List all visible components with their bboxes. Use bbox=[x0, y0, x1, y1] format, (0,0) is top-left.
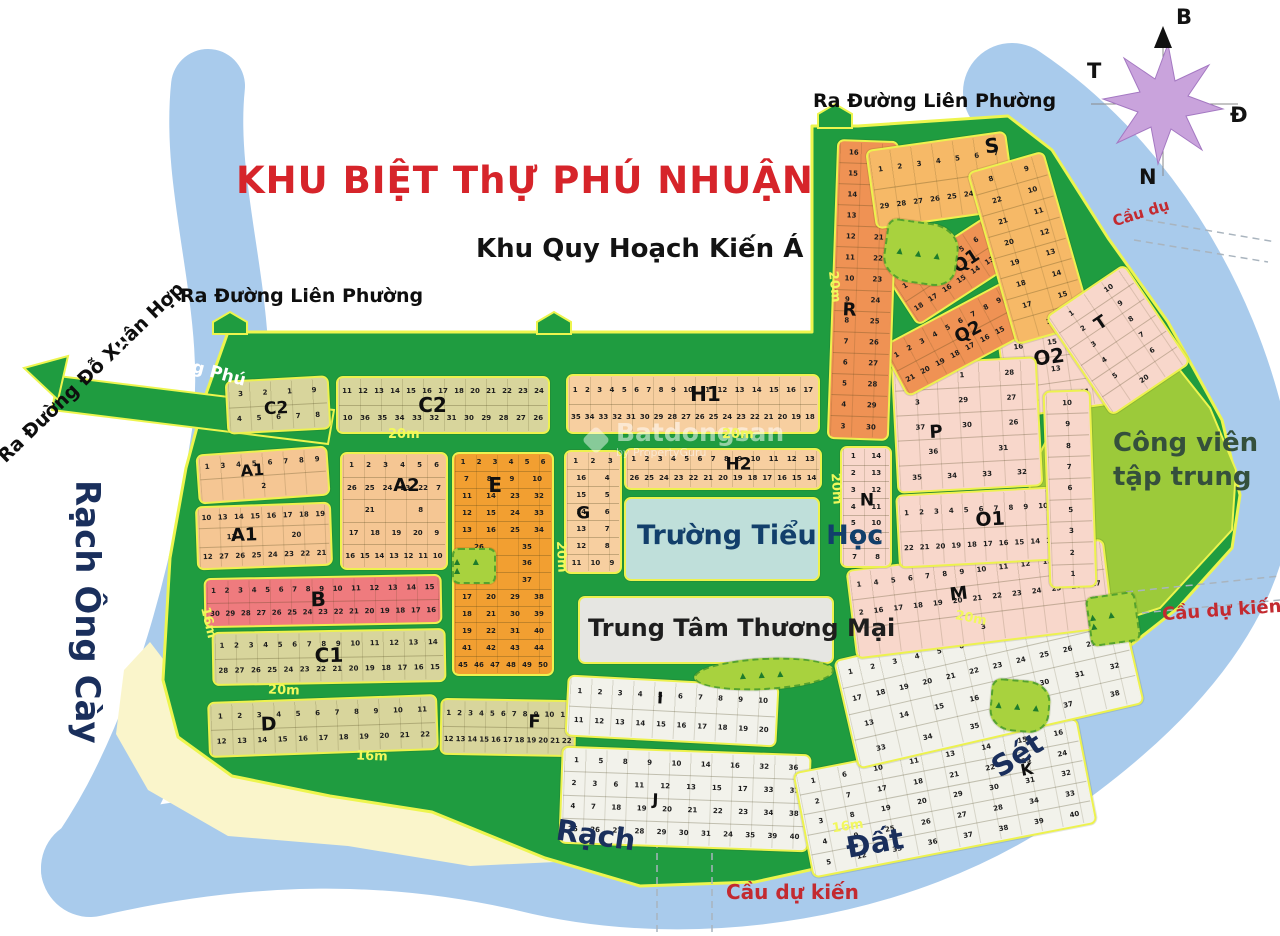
map-base-layer bbox=[0, 0, 1280, 936]
gate-arrow-icon bbox=[537, 312, 571, 334]
master-plan-map: 321945678C211121314151617182021222324103… bbox=[0, 0, 1280, 936]
gate-arrow-icon bbox=[818, 104, 852, 128]
